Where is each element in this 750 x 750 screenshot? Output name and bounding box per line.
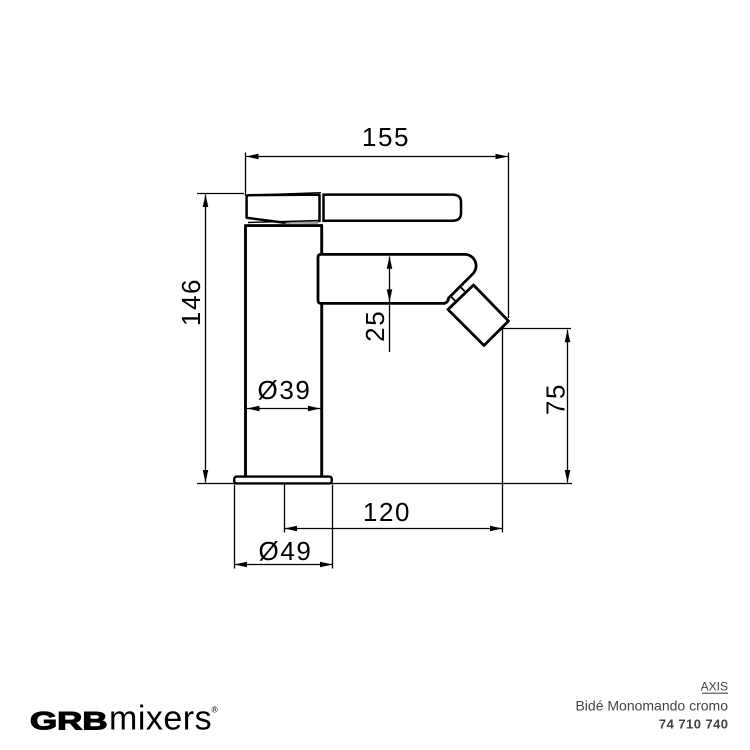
svg-text:146: 146 xyxy=(176,278,206,326)
svg-text:Ø39: Ø39 xyxy=(258,375,312,405)
svg-text:74 710 740: 74 710 740 xyxy=(659,716,729,731)
svg-text:Ø49: Ø49 xyxy=(259,536,313,566)
svg-text:®: ® xyxy=(212,705,219,715)
svg-text:mixers: mixers xyxy=(109,700,212,738)
svg-text:GRB: GRB xyxy=(30,708,108,735)
svg-text:120: 120 xyxy=(363,497,411,527)
svg-text:AXIS: AXIS xyxy=(701,680,728,694)
svg-text:25: 25 xyxy=(360,310,390,342)
svg-text:155: 155 xyxy=(362,122,410,152)
svg-text:Bidé Monomando cromo: Bidé Monomando cromo xyxy=(575,698,728,714)
svg-text:75: 75 xyxy=(541,383,571,415)
